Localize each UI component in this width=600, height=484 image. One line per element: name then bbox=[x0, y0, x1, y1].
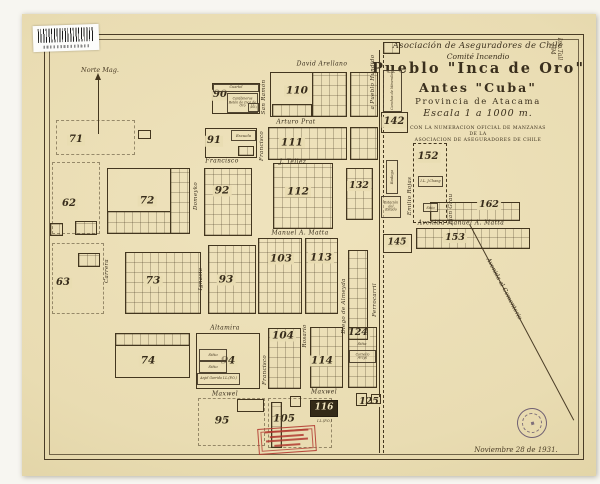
block-number-104: 104 bbox=[270, 330, 296, 341]
block-number-113: 113 bbox=[308, 252, 334, 263]
block-number-152: 152 bbox=[416, 152, 441, 163]
map-parcel-strip bbox=[238, 146, 254, 156]
block-number-91: 91 bbox=[205, 136, 223, 147]
map-block-73 bbox=[125, 252, 201, 314]
block-number-63: 63 bbox=[54, 278, 72, 289]
street-label-vertical: Domeyko bbox=[193, 182, 199, 210]
street-label-vertical: Rosario bbox=[302, 324, 308, 347]
street-label: Maxwel bbox=[311, 389, 337, 396]
map-parcel-strip bbox=[356, 393, 367, 406]
block-number-153: 153 bbox=[443, 233, 467, 243]
map-layer: 6263717273749091929394951031041051101111… bbox=[0, 0, 600, 484]
street-label-vertical: Ignacio bbox=[198, 268, 204, 291]
handwritten-date: Noviembre 28 de 1931. bbox=[474, 446, 558, 454]
map-parcel-strip bbox=[383, 42, 400, 54]
lot-label-text: Cuartel bbox=[215, 86, 257, 90]
lot-label-text: Sitio bbox=[201, 353, 226, 357]
lot-label: Estación del Estado bbox=[381, 196, 401, 218]
map-block-153 bbox=[416, 228, 530, 249]
block-number-95: 95 bbox=[213, 415, 232, 426]
map-parcel-strip bbox=[290, 396, 301, 407]
lot-label-text: Estación del Estado bbox=[382, 201, 399, 212]
lot-label: Anjel Garrido I.L.(P.O.) bbox=[197, 373, 240, 385]
map-parcel-strip bbox=[350, 72, 378, 117]
map-block-103 bbox=[258, 238, 302, 314]
street-label: Arturo Prat bbox=[276, 119, 315, 126]
lot-label: Cornelio Araya bbox=[349, 350, 376, 363]
block-number-73: 73 bbox=[144, 275, 163, 286]
lot-label-text: Anjel Garrido I.L.(P.O.) bbox=[199, 377, 238, 381]
lot-label: Sitio bbox=[199, 361, 227, 373]
lot-label: Bodega bbox=[386, 160, 398, 194]
lot-label-text: Canchas de Minerales bbox=[391, 72, 395, 110]
block-number-112: 112 bbox=[285, 186, 311, 197]
lot-label-text: I.L. J.Chang bbox=[419, 180, 441, 184]
lot-label-text: Sitio bbox=[201, 365, 226, 369]
lot-label: I.L. J.Chang bbox=[418, 176, 443, 187]
map-parcel-strip bbox=[138, 130, 151, 139]
map-parcel-strip bbox=[107, 211, 171, 234]
map-parcel-strip bbox=[350, 127, 378, 160]
street-label-vertical: Diego de Almeyda bbox=[341, 278, 347, 333]
red-stamp-inner-border bbox=[260, 428, 314, 452]
street-label: David Arellano bbox=[297, 61, 348, 68]
map-parcel-strip bbox=[237, 399, 264, 412]
map-parcel-strip bbox=[348, 250, 368, 340]
street-label: Francisco bbox=[205, 158, 238, 165]
block-number-132: 132 bbox=[347, 181, 371, 191]
scanned-map-sheet: Norte Mag. Asociación de Aseguradores de… bbox=[0, 0, 600, 484]
street-label-vertical: Emilio Rojas bbox=[407, 177, 413, 215]
block-number-145: 145 bbox=[386, 238, 409, 247]
block-number-111: 111 bbox=[279, 137, 305, 148]
corner-mark-text: Inc.Tall 194 bbox=[549, 38, 563, 60]
lot-label: Escuela bbox=[231, 130, 256, 141]
street-label: Avenida Manuel A. Matta bbox=[418, 220, 504, 227]
lot-label-text: Cornelio Araya bbox=[351, 353, 375, 360]
lot-label: Sitio bbox=[423, 203, 438, 212]
map-parcel-strip bbox=[272, 104, 312, 117]
map-parcel-strip bbox=[371, 394, 381, 404]
lot-label-text: Escuela bbox=[232, 133, 254, 137]
lot-label: Sitio bbox=[199, 349, 227, 361]
block-number-103: 103 bbox=[268, 253, 294, 264]
block-number-162: 162 bbox=[477, 200, 501, 210]
street-label-vertical: Juan Grau bbox=[448, 194, 454, 225]
street-label: J. Tellez bbox=[280, 159, 307, 166]
map-parcel-strip bbox=[50, 223, 63, 236]
block-number-62: 62 bbox=[60, 199, 78, 210]
street-label-vertical: Francisco bbox=[259, 131, 265, 161]
lot-label-text: Sitio bbox=[424, 205, 436, 209]
lot-label: Cuartel bbox=[213, 84, 259, 92]
red-stamp bbox=[257, 425, 317, 455]
street-label-vertical: San Ramón bbox=[261, 80, 267, 115]
street-label: Manuel A. Matta bbox=[271, 230, 328, 237]
map-block-113 bbox=[305, 238, 338, 314]
block-number-110: 110 bbox=[284, 85, 310, 96]
street-label-vertical: Carrera bbox=[104, 259, 110, 283]
lot-label-text: I.L.(P.O.) bbox=[312, 420, 338, 424]
map-parcel-strip bbox=[75, 221, 97, 235]
lot-label: Canchas de Minerales bbox=[383, 70, 402, 112]
lot-label-text: Sitio bbox=[350, 342, 373, 346]
block-number-74: 74 bbox=[139, 355, 158, 366]
lot-label-text: I.L. (P.O.) bbox=[249, 105, 258, 111]
map-parcel-strip bbox=[312, 72, 347, 117]
map-parcel-strip bbox=[78, 253, 100, 267]
lot-label: I.L. (P.O.) bbox=[248, 103, 259, 112]
map-parcel-strip bbox=[115, 333, 190, 346]
map-block-132 bbox=[346, 168, 373, 220]
street-label: Altamira bbox=[210, 325, 240, 332]
block-number-116: 116 bbox=[315, 403, 334, 412]
block-number-92: 92 bbox=[213, 185, 232, 196]
block-number-71: 71 bbox=[67, 135, 85, 146]
block-number-93: 93 bbox=[217, 274, 236, 285]
map-parcel-strip bbox=[170, 168, 190, 234]
block-number-72: 72 bbox=[138, 195, 157, 206]
street-label: Maxwel bbox=[212, 391, 238, 398]
block-number-142: 142 bbox=[382, 117, 407, 128]
block-number-114: 114 bbox=[309, 355, 335, 366]
street-label-vertical: Francisco bbox=[262, 355, 268, 385]
map-block-162 bbox=[430, 202, 520, 221]
lot-label-text: Bodega bbox=[390, 170, 394, 184]
handwritten-corner-mark: Inc.Tall 194 bbox=[546, 26, 566, 72]
lot-label: Sitio bbox=[350, 339, 374, 349]
map-block-92 bbox=[204, 168, 252, 236]
